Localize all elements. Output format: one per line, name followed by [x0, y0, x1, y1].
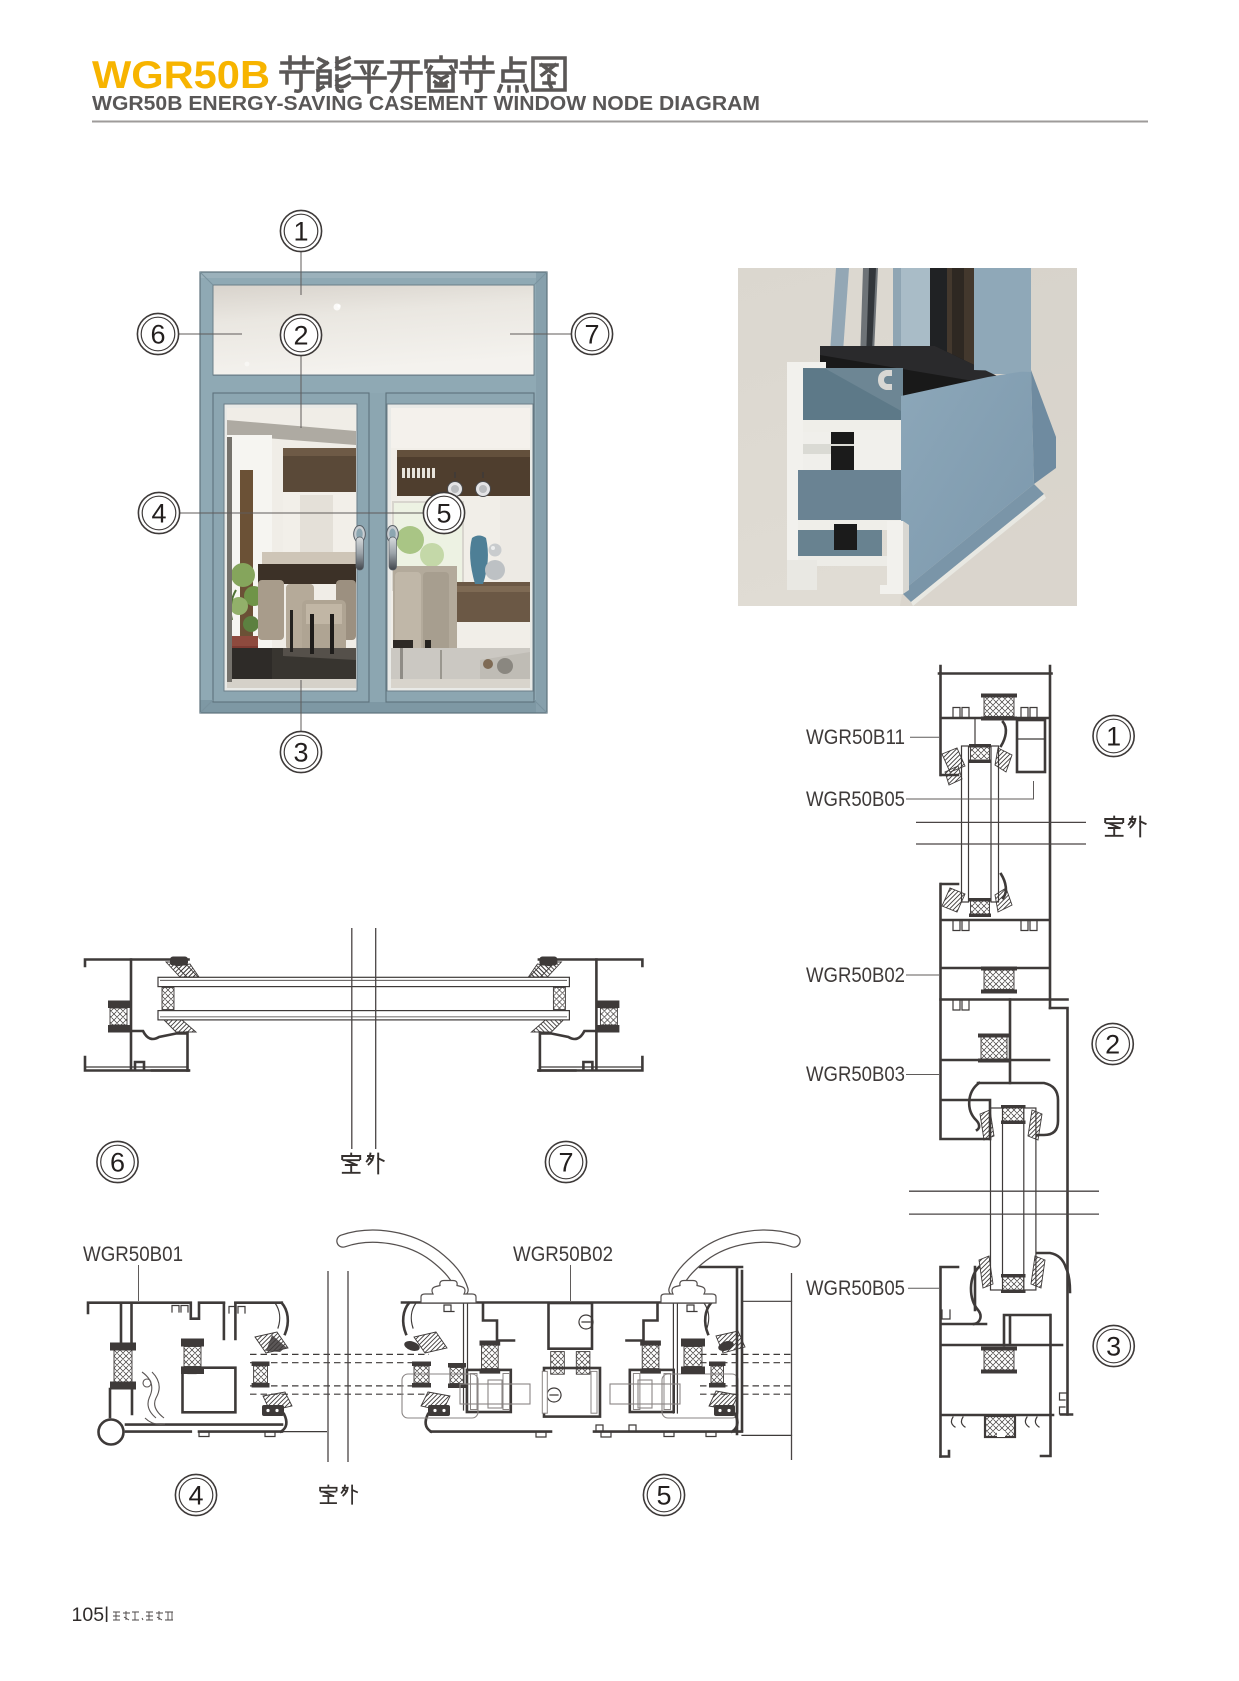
- svg-text:WGR50B: WGR50B: [92, 54, 270, 97]
- svg-text:7: 7: [584, 320, 599, 350]
- svg-text:WGR50B01: WGR50B01: [83, 1243, 183, 1266]
- svg-text:4: 4: [188, 1481, 203, 1511]
- svg-text:6: 6: [110, 1148, 125, 1178]
- svg-text:1: 1: [293, 217, 308, 247]
- svg-text:WGR50B02: WGR50B02: [806, 964, 905, 987]
- svg-text:WGR50B11: WGR50B11: [806, 726, 905, 749]
- svg-text:WGR50B05: WGR50B05: [806, 1277, 905, 1300]
- svg-text:3: 3: [1106, 1332, 1121, 1362]
- svg-text:7: 7: [558, 1148, 573, 1178]
- svg-text:2: 2: [1105, 1030, 1120, 1060]
- svg-text:6: 6: [150, 320, 165, 350]
- svg-text:3: 3: [293, 738, 308, 768]
- svg-text:WGR50B03: WGR50B03: [806, 1063, 905, 1086]
- svg-text:2: 2: [293, 321, 308, 351]
- svg-text:4: 4: [151, 499, 166, 529]
- svg-text:5: 5: [436, 499, 451, 529]
- svg-text:5: 5: [656, 1481, 671, 1511]
- svg-text:WGR50B ENERGY-SAVING CASEMENT: WGR50B ENERGY-SAVING CASEMENT WINDOW NOD…: [92, 93, 760, 115]
- svg-text:WGR50B05: WGR50B05: [806, 788, 905, 811]
- svg-text:105: 105: [72, 1604, 105, 1626]
- svg-text:WGR50B02: WGR50B02: [513, 1243, 613, 1266]
- svg-text:1: 1: [1106, 722, 1121, 752]
